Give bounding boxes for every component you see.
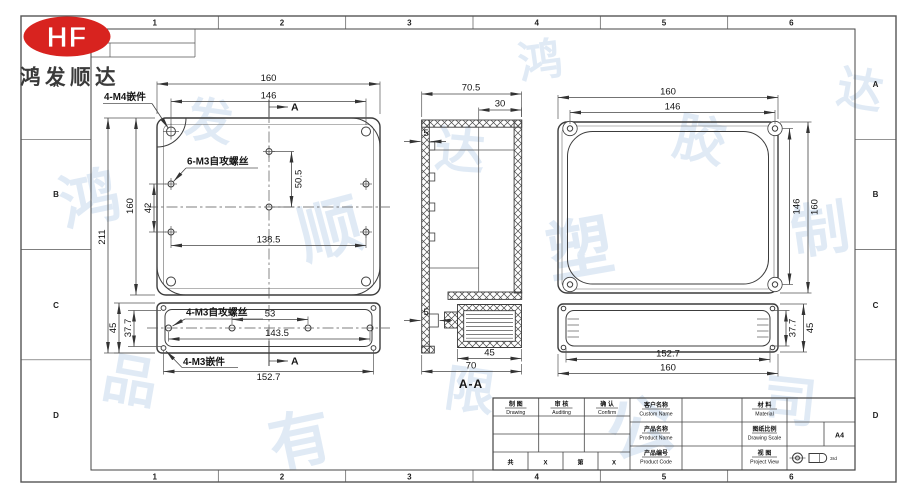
label-m3-screw: 6-M3自攻螺丝: [187, 155, 249, 168]
tb-confirm-en: Confirm: [598, 410, 616, 416]
dim-section-depth: 70: [466, 361, 477, 372]
tb-product-code-en: Product Code: [640, 460, 672, 466]
tb-scale-en: Drawing Scale: [748, 436, 782, 442]
tb-customer-en: Custom Name: [639, 412, 672, 418]
zone-left-b: B: [53, 190, 59, 199]
tb-sheet-1: X: [543, 461, 547, 467]
zone-top-5: 5: [662, 19, 667, 28]
dim-lid-height: 45: [108, 323, 119, 334]
zone-left-c: C: [53, 301, 59, 310]
dim-section-wall-top: 5: [423, 128, 428, 139]
dim-base-height-total: 211: [97, 229, 108, 244]
section-letter-top: A: [291, 102, 299, 114]
tb-material-en: Material: [755, 412, 773, 418]
tb-scale-cn: 图纸比例: [752, 425, 776, 433]
zone-right-c: C: [873, 301, 879, 310]
section-marker-bottom: A: [269, 341, 299, 368]
dim-section-wall-bottom: 5: [423, 307, 428, 318]
tb-product-name-cn: 产品名称: [644, 425, 668, 433]
zone-bottom-3: 3: [407, 473, 412, 482]
callout-m3-screw: 6-M3自攻螺丝: [174, 155, 259, 182]
tb-auditing-cn: 审 核: [555, 400, 569, 408]
tb-sheet-2: 第: [576, 459, 583, 467]
technical-drawing: 鸿 发 顺 达 塑 胶 制 品 有 限 公 司 鸿 达 1 2: [0, 0, 900, 500]
zone-top-3: 3: [407, 19, 412, 28]
dim-cover-height-inner: 146: [792, 199, 803, 215]
watermark-char: 品: [98, 346, 163, 417]
dim-lid-hole-gap: 53: [265, 309, 276, 320]
tb-confirm-cn: 确 认: [600, 400, 615, 408]
tb-sheet-0: 共: [507, 459, 513, 467]
watermark-char: 胶: [668, 107, 731, 175]
zone-top-2: 2: [280, 19, 285, 28]
zone-top-1: 1: [152, 19, 157, 28]
dim-cover-width-inner: 146: [665, 102, 681, 113]
watermark-char: 鸿: [515, 34, 565, 89]
zone-top-4: 4: [534, 19, 539, 28]
dim-base-height: 160: [125, 198, 136, 214]
zone-right-d: D: [873, 411, 879, 420]
dim-base-hole-gap: 42: [143, 203, 154, 214]
label-lid-screw: 4-M3自攻螺丝: [186, 306, 248, 319]
zone-bottom-5: 5: [662, 473, 667, 482]
zone-bottom-4: 4: [534, 473, 539, 482]
zone-bottom-1: 1: [152, 473, 157, 482]
label-m4-insert: 4-M4嵌件: [104, 90, 146, 103]
dim-cover-side-width: 160: [660, 363, 676, 374]
tb-customer-cn: 客户名称: [643, 401, 668, 409]
zone-left-d: D: [53, 411, 59, 420]
label-lid-insert: 4-M3嵌件: [183, 355, 225, 368]
dim-cover-height: 160: [810, 199, 821, 215]
callout-lid-screw: 4-M3自攻螺丝: [173, 306, 264, 327]
section-marker-top: A: [269, 100, 299, 118]
watermark-char: 顺: [290, 187, 370, 273]
watermark-char: 塑: [541, 207, 619, 291]
tb-product-name-en: Product Name: [639, 436, 672, 442]
cover-side-view: 37.7 45 152.7 160: [558, 304, 816, 377]
projection-note: 3rd: [830, 456, 837, 462]
tb-view-cn: 视 图: [758, 449, 772, 457]
projection-symbol-icon: 3rd: [790, 453, 838, 463]
tb-auditing-en: Auditing: [552, 410, 571, 416]
dim-lid-hole-span: 143.5: [265, 328, 289, 339]
drawing-sheet: 鸿 发 顺 达 塑 胶 制 品 有 限 公 司 鸿 达 1 2: [0, 0, 900, 500]
dim-cover-side-width-inner: 152.7: [656, 349, 680, 360]
company-name: 鸿发顺达: [20, 65, 120, 89]
tb-material-cn: 材 料: [757, 401, 772, 409]
zone-bottom-6: 6: [789, 473, 794, 482]
tb-paper-size: A4: [835, 433, 844, 440]
zone-right-b: B: [873, 190, 879, 199]
watermark-char: 鸿: [54, 161, 127, 239]
tb-sheet-3: X: [612, 461, 616, 467]
watermark-char: 司: [760, 369, 820, 434]
zone-top-6: 6: [789, 19, 794, 28]
dim-section-lid: 45: [484, 348, 495, 359]
dim-cover-side-height-inner: 37.7: [788, 319, 799, 338]
dim-base-hole-v: 50.5: [294, 170, 305, 189]
company-logo: HF: [24, 17, 111, 57]
tb-drawing-cn: 制 图: [509, 400, 523, 408]
dim-lid-width: 152.7: [257, 372, 281, 383]
dim-lid-height-inner: 37.7: [123, 319, 134, 338]
dim-section-width: 70.5: [462, 83, 481, 94]
tb-view-en: Project View: [750, 460, 779, 466]
dim-section-offset: 30: [495, 99, 506, 110]
tb-product-code-cn: 产品编号: [644, 449, 668, 457]
dim-base-width: 160: [261, 73, 277, 84]
dim-cover-side-height: 45: [805, 323, 816, 334]
watermark-char: 达: [433, 121, 488, 181]
zone-bottom-2: 2: [280, 473, 285, 482]
logo-text: HF: [47, 22, 88, 54]
dim-base-hole-span: 138.5: [257, 235, 281, 246]
tb-drawing-en: Drawing: [506, 410, 525, 416]
watermark-char: 达: [833, 60, 887, 119]
section-title: A-A: [459, 377, 483, 391]
section-letter-bottom: A: [291, 356, 299, 368]
zone-right-a: A: [873, 80, 879, 89]
dim-cover-width: 160: [660, 87, 676, 98]
